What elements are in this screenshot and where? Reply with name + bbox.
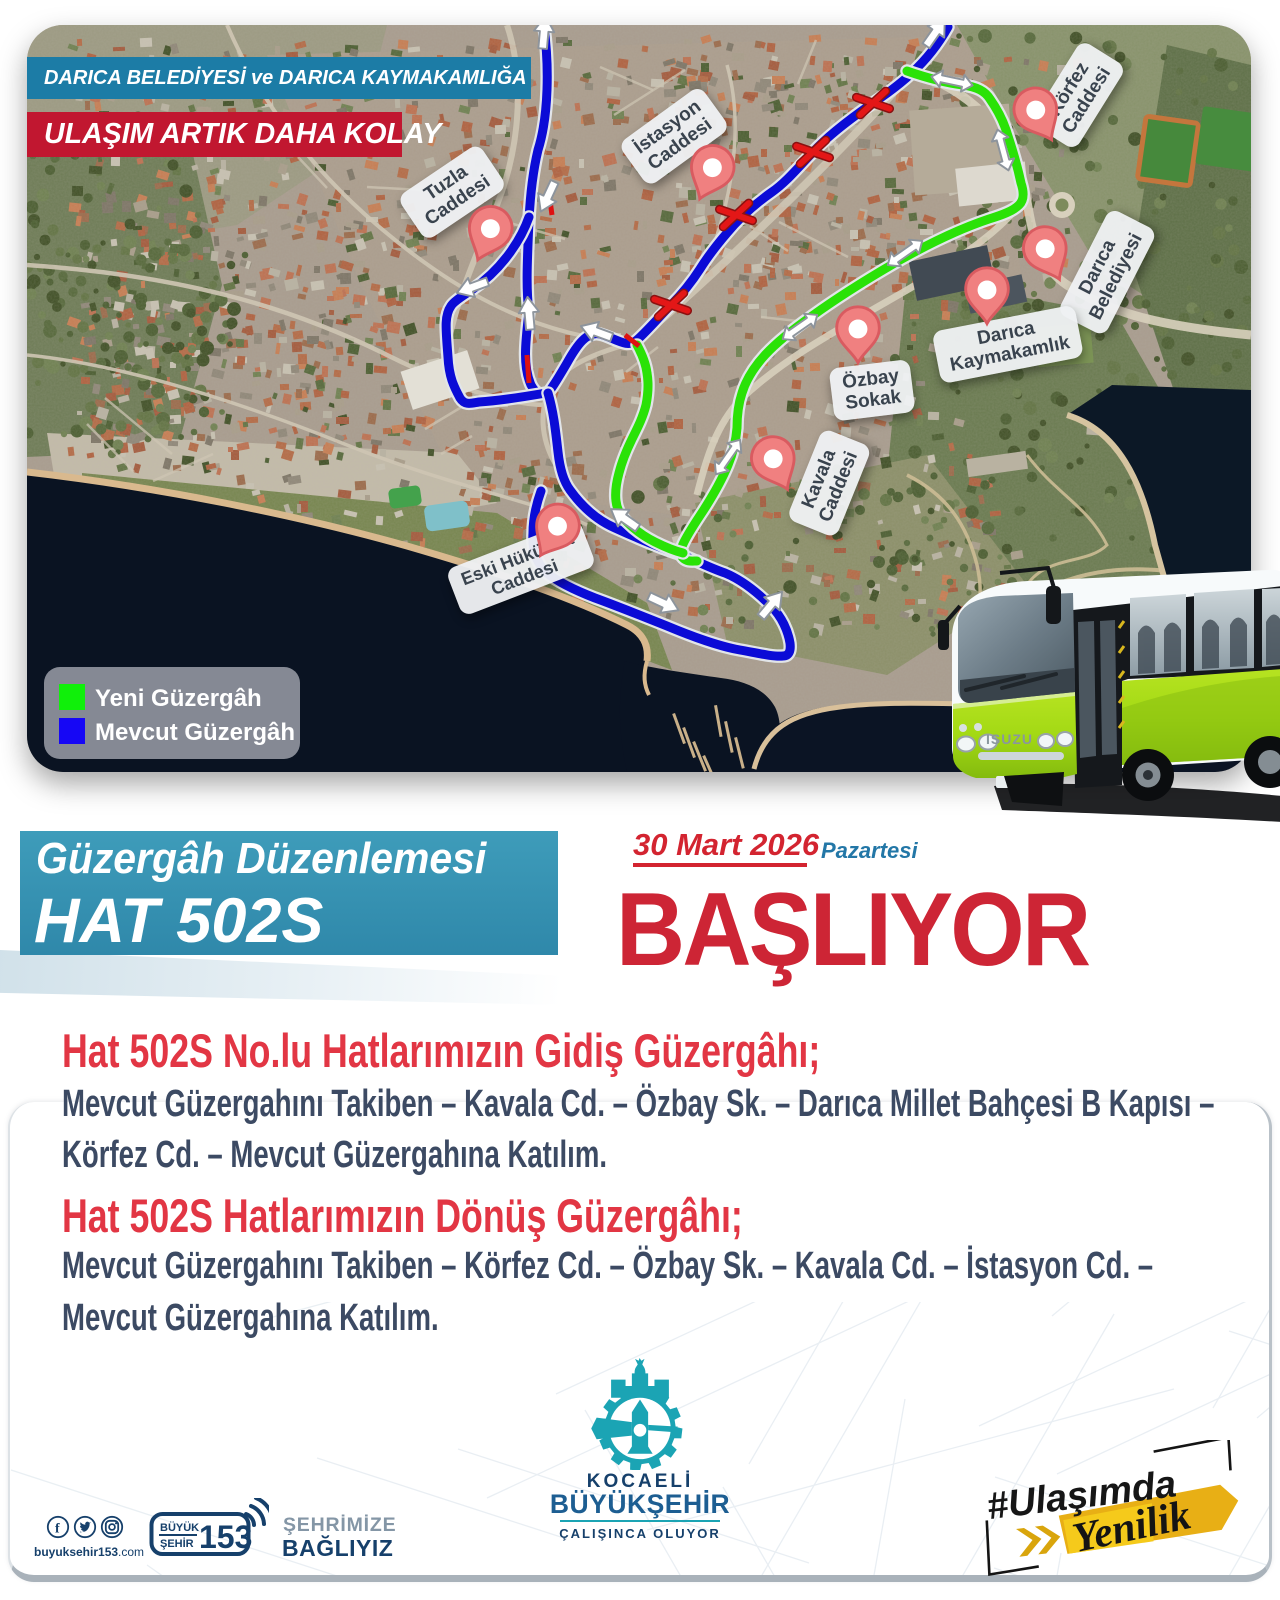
svg-text:ISUZU: ISUZU (986, 731, 1033, 747)
svg-text:ŞEHİR: ŞEHİR (160, 1537, 194, 1550)
svg-text:153: 153 (199, 1519, 252, 1555)
svg-text:f: f (55, 1522, 60, 1537)
svg-text:BÜYÜK: BÜYÜK (160, 1521, 199, 1534)
